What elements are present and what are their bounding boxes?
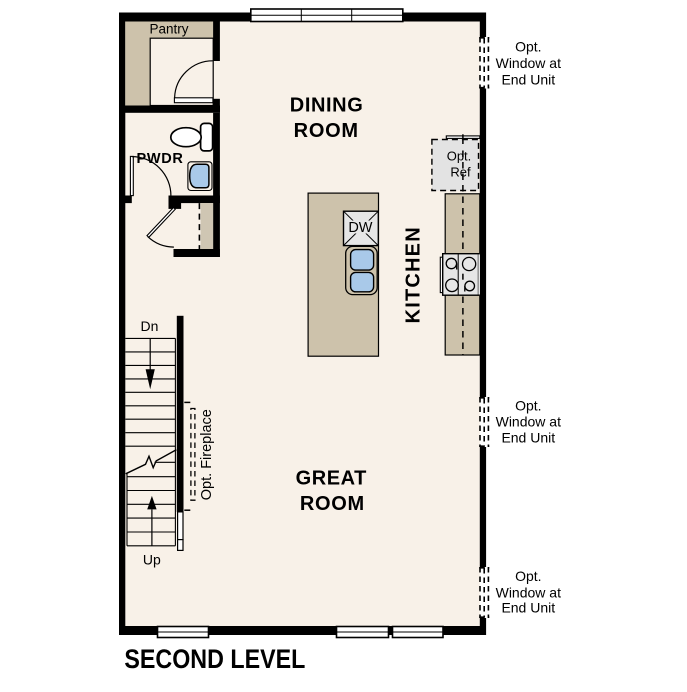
svg-text:Dn: Dn [141,318,159,334]
svg-text:Ref: Ref [450,165,471,180]
svg-text:Opt.: Opt. [515,568,541,584]
svg-text:GREAT: GREAT [296,467,367,489]
svg-text:DINING: DINING [290,95,364,117]
svg-text:End Unit: End Unit [501,72,555,88]
svg-text:Window at: Window at [496,584,561,600]
svg-text:Opt. Fireplace: Opt. Fireplace [199,409,215,500]
svg-text:Window at: Window at [496,55,561,71]
svg-text:Opt.: Opt. [447,148,472,163]
svg-text:Opt.: Opt. [515,39,541,55]
svg-text:Pantry: Pantry [149,22,188,37]
svg-text:End Unit: End Unit [501,429,555,445]
svg-text:DW: DW [348,220,372,236]
svg-text:Window at: Window at [496,414,561,430]
svg-text:Opt.: Opt. [515,397,541,413]
svg-text:ROOM: ROOM [294,120,359,142]
svg-text:SECOND LEVEL: SECOND LEVEL [124,645,305,675]
svg-text:KITCHEN: KITCHEN [403,226,425,323]
svg-text:Up: Up [143,551,161,567]
svg-text:End Unit: End Unit [501,599,555,615]
svg-text:ROOM: ROOM [300,493,365,515]
